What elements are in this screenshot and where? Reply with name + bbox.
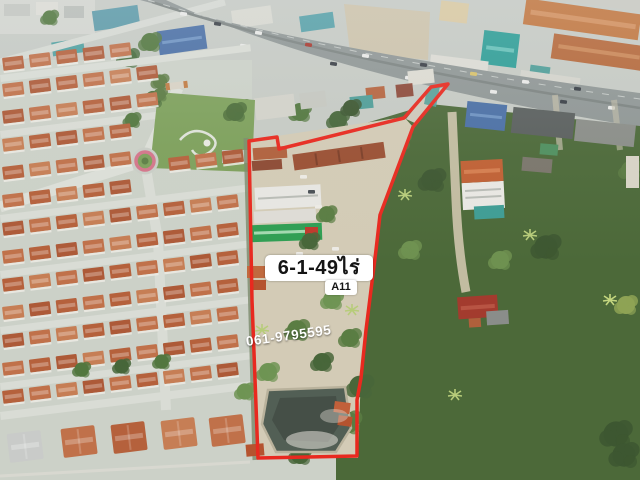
area-label: 6-1-49ไร่ <box>265 255 373 281</box>
roundabout <box>132 148 159 175</box>
aerial-scene <box>0 0 640 480</box>
plot-code-label: A11 <box>325 280 357 295</box>
aerial-photo: 6-1-49ไร่ A11 061-9795595 <box>0 0 640 480</box>
